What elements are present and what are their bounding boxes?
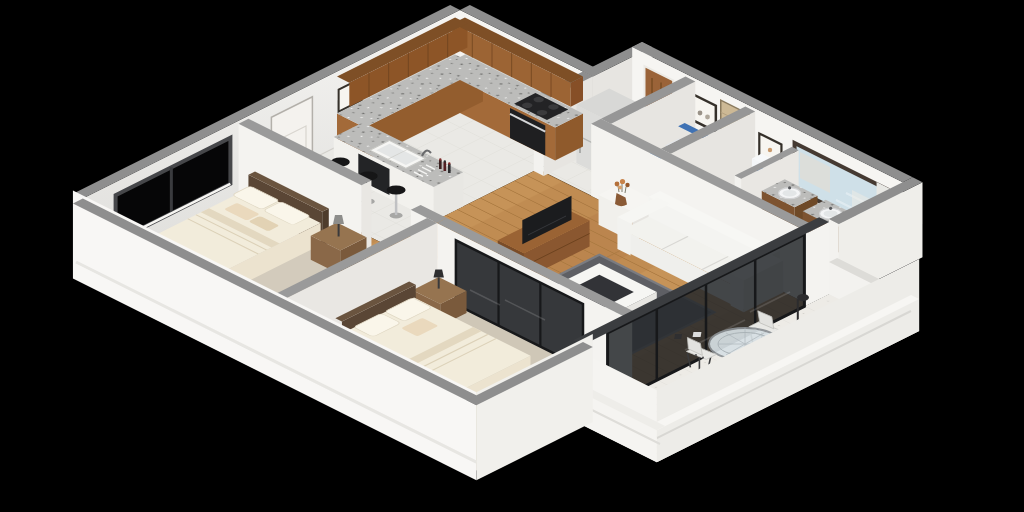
table-item [693,332,702,337]
table-item [674,334,682,339]
floor-plan-render: 3D isometric cutaway floor plan render o… [0,0,1024,512]
faucet [788,186,791,189]
screenshot-canvas: 3D isometric cutaway floor plan render o… [0,0,1024,512]
faucet [829,207,832,210]
